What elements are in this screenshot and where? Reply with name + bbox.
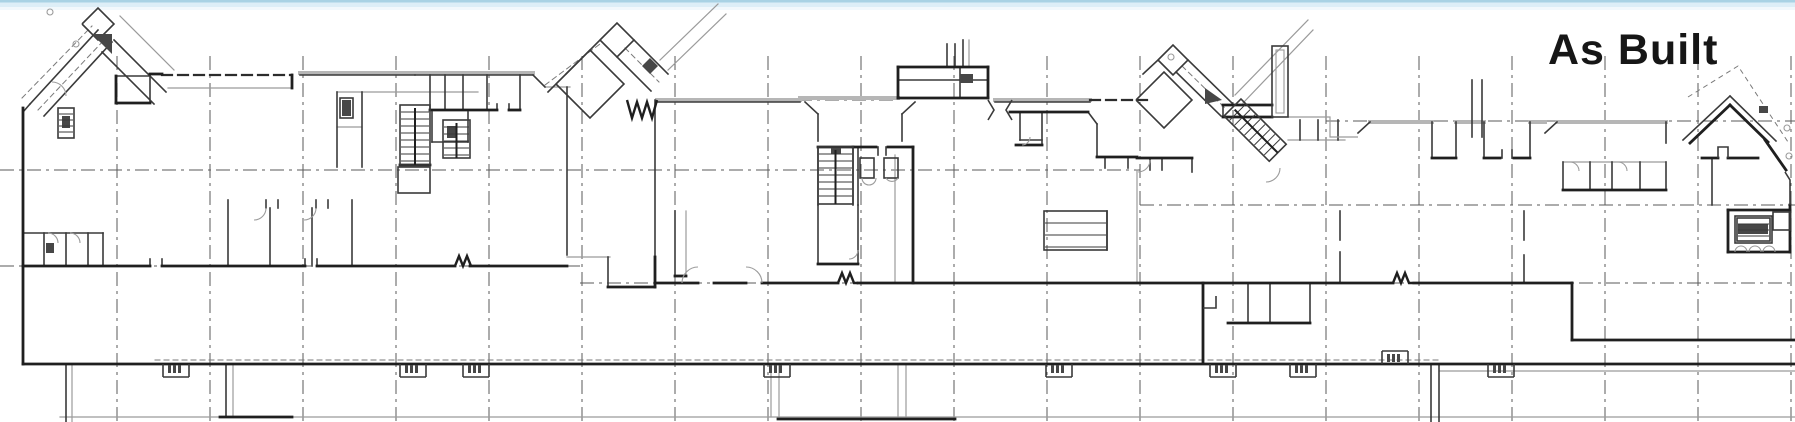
as-built-floor-plan-page: As Built <box>0 0 1795 422</box>
as-built-label: As Built <box>1548 26 1768 75</box>
floor-plan-svg <box>0 0 1795 422</box>
